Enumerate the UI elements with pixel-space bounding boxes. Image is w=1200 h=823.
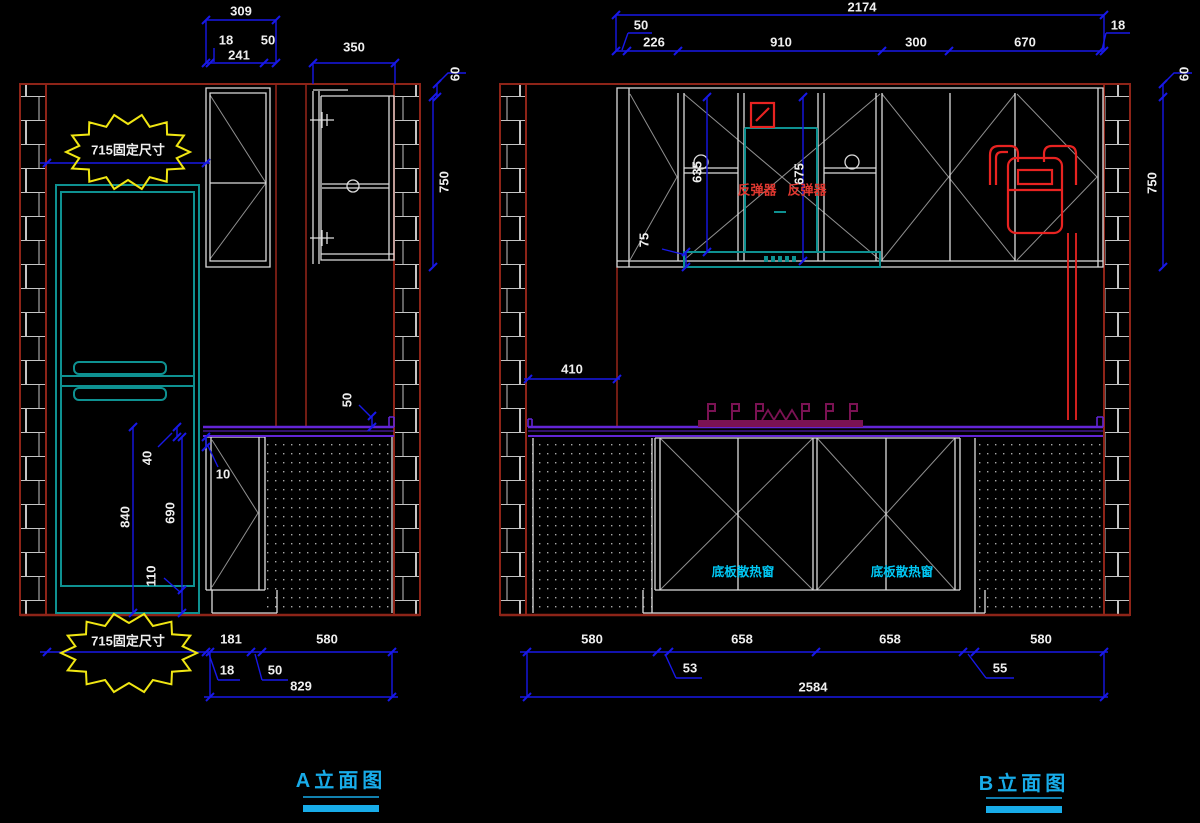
dim-a-60: 60 <box>449 67 462 81</box>
dim-b-750: 750 <box>1146 172 1159 194</box>
dim-b-580-left: 580 <box>581 633 603 646</box>
fridge-outline <box>56 185 199 613</box>
dim-b-410: 410 <box>561 363 583 376</box>
water-heater-icon <box>990 146 1076 420</box>
dim-a-241: 241 <box>228 49 250 62</box>
dim-b-226: 226 <box>643 36 665 49</box>
cad-drawing-canvas: 309 18 241 50 350 60 750 715固定尺寸 50 840 … <box>0 0 1200 823</box>
dim-a-18-top: 18 <box>219 34 233 47</box>
dim-b-580-right: 580 <box>1030 633 1052 646</box>
title-elevation-b: B立面图 <box>979 774 1069 794</box>
dim-b-2174: 2174 <box>848 1 877 14</box>
label-rebound-left: 反弹器 <box>737 184 776 197</box>
dim-a-829: 829 <box>290 680 312 693</box>
dim-a-750: 750 <box>438 171 451 193</box>
revision-clouds <box>61 115 197 692</box>
dim-a-40: 40 <box>141 451 154 465</box>
dim-b-670: 670 <box>1014 36 1036 49</box>
dim-b-635: 635 <box>691 161 704 183</box>
countertop-a <box>203 417 394 436</box>
dim-a-690: 690 <box>164 502 177 524</box>
dim-a-18-bottom: 18 <box>220 664 234 677</box>
label-rebound-right: 反弹器 <box>787 184 826 197</box>
dim-b-658-left: 658 <box>731 633 753 646</box>
dim-a-50-top: 50 <box>261 34 275 47</box>
dim-a-309: 309 <box>230 5 252 18</box>
dim-b-60: 60 <box>1178 67 1191 81</box>
title-underlines <box>303 797 1062 813</box>
cad-linework <box>0 0 1200 823</box>
dim-a-50-backsplash: 50 <box>341 393 354 407</box>
dim-a-840: 840 <box>119 506 132 528</box>
dim-a-50-bottom: 50 <box>268 664 282 677</box>
gas-stove <box>698 404 863 427</box>
dim-b-18: 18 <box>1111 19 1125 32</box>
dim-b-50: 50 <box>634 19 648 32</box>
dim-b-55: 55 <box>993 662 1007 675</box>
dim-b-53: 53 <box>683 662 697 675</box>
dim-b-658-right: 658 <box>879 633 901 646</box>
label-vent-right: 底板散热窗 <box>871 566 934 579</box>
range-hood <box>684 128 880 267</box>
dim-a-110: 110 <box>145 566 158 587</box>
outlet-symbol-icon <box>751 103 774 127</box>
note-a-715-top: 715固定尺寸 <box>91 144 165 157</box>
note-a-715-bottom: 715固定尺寸 <box>91 635 165 648</box>
title-elevation-a: A立面图 <box>296 771 386 791</box>
label-vent-left: 底板散热窗 <box>712 566 775 579</box>
dim-b-300: 300 <box>905 36 927 49</box>
dim-b-910: 910 <box>770 36 792 49</box>
dim-a-580: 580 <box>316 633 338 646</box>
dim-a-181: 181 <box>220 633 242 646</box>
dim-a-10: 10 <box>216 468 230 481</box>
dim-b-2584: 2584 <box>799 681 828 694</box>
dim-b-75: 75 <box>638 233 651 247</box>
dim-a-350: 350 <box>343 41 365 54</box>
